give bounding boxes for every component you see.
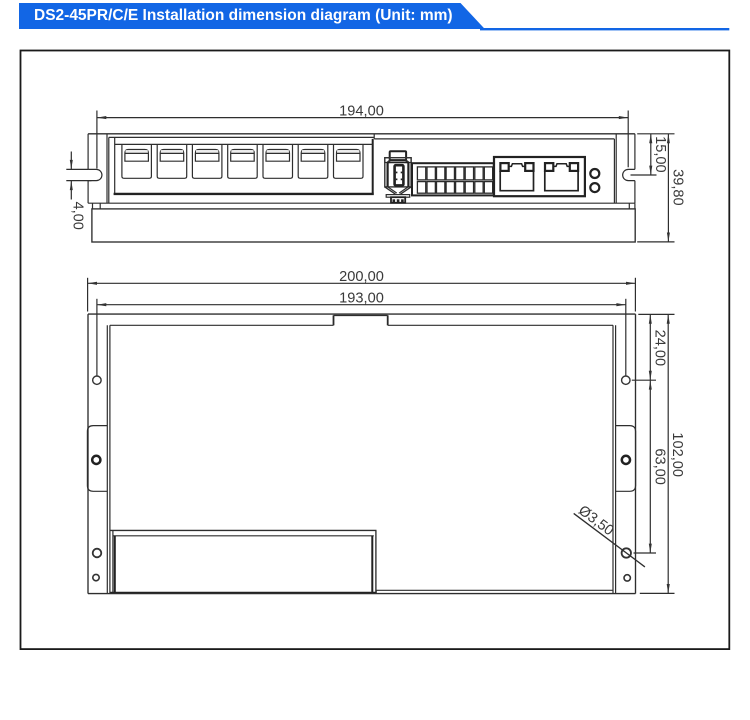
svg-text:DS2-45PR/C/E Installation dime: DS2-45PR/C/E Installation dimension diag…: [34, 7, 453, 24]
svg-text:Ø3,50: Ø3,50: [575, 503, 616, 540]
svg-text:63,00: 63,00: [651, 448, 667, 485]
svg-text:39,80: 39,80: [669, 169, 685, 206]
svg-text:24,00: 24,00: [651, 330, 667, 367]
svg-text:200,00: 200,00: [339, 269, 384, 285]
svg-text:15,00: 15,00: [652, 136, 668, 173]
svg-text:102,00: 102,00: [669, 432, 685, 477]
svg-text:194,00: 194,00: [339, 103, 384, 119]
svg-text:4,00: 4,00: [69, 202, 85, 230]
svg-text:193,00: 193,00: [339, 291, 384, 307]
